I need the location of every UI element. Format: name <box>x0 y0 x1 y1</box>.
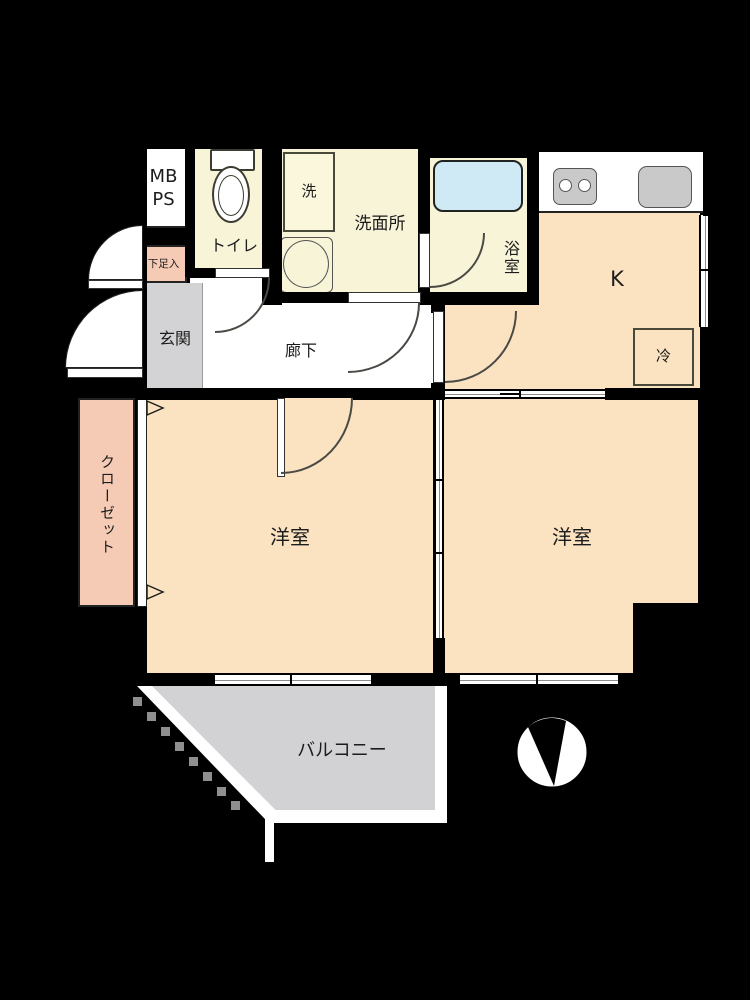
toilet-door-leaf <box>215 268 270 278</box>
shoe-cabinet-box: 下足入 <box>140 245 187 283</box>
shaft-door-leaf <box>88 280 143 289</box>
sliding-door-tick <box>435 479 443 481</box>
meter-pipe-shaft-box: MB PS <box>140 147 187 228</box>
washbasin-bowl-icon <box>283 240 329 288</box>
sliding-door-tick <box>500 393 520 395</box>
closet-door-arrow-icon <box>146 400 166 417</box>
balcony-hatch <box>133 697 142 706</box>
balcony-hatch <box>147 712 156 721</box>
wall <box>371 673 460 686</box>
wall <box>137 673 215 686</box>
wall <box>618 673 700 686</box>
balcony-hatch <box>217 787 226 796</box>
washroom-label: 洗面所 <box>330 209 430 234</box>
floor-plan: MB PS 下足入 洗 <box>0 0 750 1000</box>
mbps-label-ps: PS <box>142 189 185 212</box>
bathroom-label: 浴室 <box>498 230 522 286</box>
wall <box>537 146 710 151</box>
western-room-left-label: 洋室 <box>240 521 340 550</box>
balcony-hatch <box>175 742 184 751</box>
kitchen-label: K <box>600 267 634 291</box>
wall <box>605 388 700 400</box>
washing-machine-box: 洗 <box>283 152 335 232</box>
refrigerator-box: 冷 <box>633 328 694 386</box>
closet-door-arrow-icon <box>146 584 166 601</box>
refrigerator-label: 冷 <box>656 347 671 365</box>
sliding-door-kitchen-room <box>443 389 607 399</box>
entrance-door-swing <box>65 290 143 368</box>
stove-burner-icon <box>559 179 572 192</box>
wall <box>527 140 539 305</box>
wall <box>418 140 539 158</box>
wall <box>353 388 438 400</box>
washing-machine-label: 洗 <box>301 182 316 200</box>
closet-label: クローゼット <box>97 432 118 577</box>
entrance-door-leaf <box>67 368 143 378</box>
balcony-hatch <box>189 757 198 766</box>
balcony-hatch <box>231 801 240 810</box>
sliding-door-between-rooms <box>434 398 444 638</box>
balcony-hatch <box>161 727 170 736</box>
toilet-bowl-inner <box>218 175 244 216</box>
bathroom-door-leaf <box>419 233 430 288</box>
sliding-door-tick <box>435 552 443 554</box>
window-left-room <box>213 673 373 686</box>
western-room-right-label: 洋室 <box>522 521 622 550</box>
window-right-room <box>458 673 620 686</box>
wall <box>282 292 348 303</box>
stove-burner-icon <box>578 179 591 192</box>
kitchen-door-leaf <box>433 311 444 383</box>
mbps-label-mb: MB <box>142 166 185 189</box>
wall <box>185 140 195 277</box>
washroom-door-leaf <box>348 292 421 303</box>
shaft-door-swing <box>88 225 143 280</box>
toilet-label: トイレ <box>196 232 272 256</box>
bathtub-icon <box>433 160 523 212</box>
hallway-label: 廊下 <box>271 337 331 361</box>
window-tick <box>290 675 292 684</box>
window-tick <box>701 269 709 271</box>
window-kitchen <box>699 215 710 327</box>
shoe-cabinet-label: 下足入 <box>148 258 180 270</box>
closet-sliding-door <box>137 398 147 607</box>
entrance-label: 玄関 <box>148 325 202 349</box>
kitchen-sink-icon <box>638 166 692 208</box>
balcony-label: バルコニー <box>281 736 403 762</box>
north-compass-icon <box>513 713 591 791</box>
wall <box>703 146 710 216</box>
window-tick <box>536 675 538 684</box>
balcony-hatch <box>203 772 212 781</box>
wall <box>137 388 280 400</box>
balcony-side-wall-stub <box>265 810 274 862</box>
wall <box>137 140 438 149</box>
